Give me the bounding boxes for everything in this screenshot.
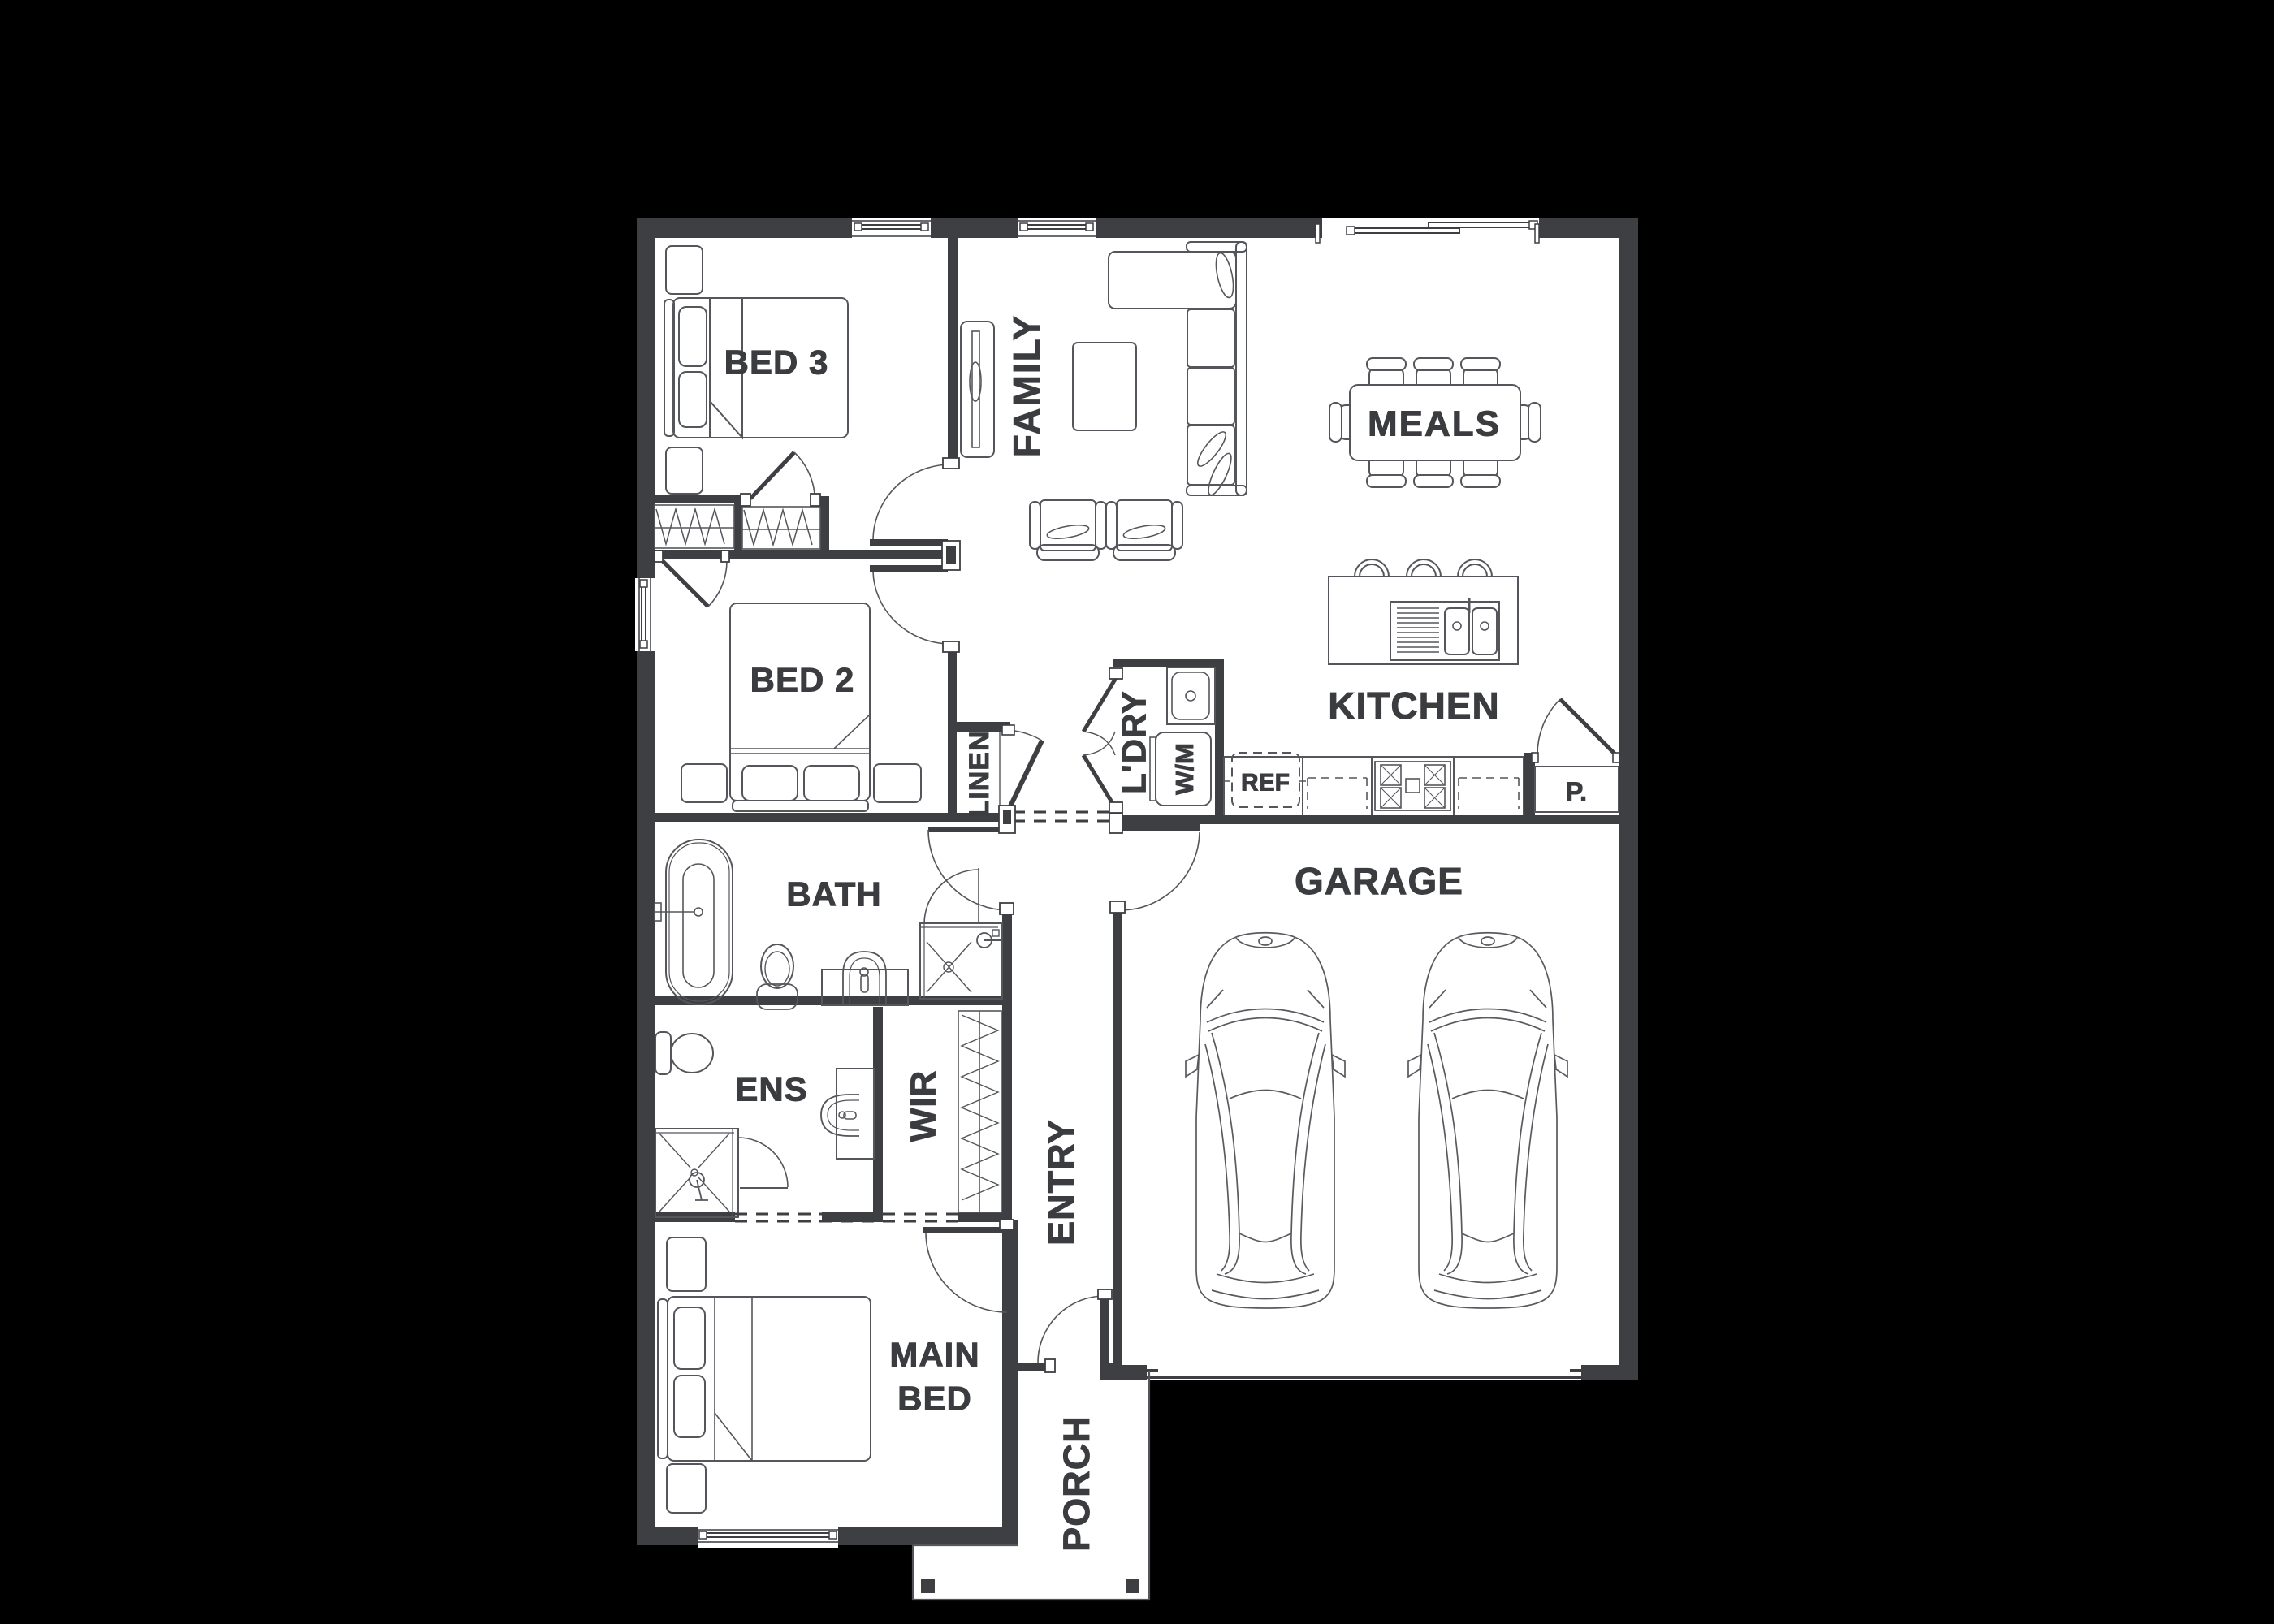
svg-text:P.: P. <box>1566 777 1587 806</box>
svg-text:L'DRY: L'DRY <box>1115 690 1153 794</box>
svg-text:REF: REF <box>1241 770 1290 797</box>
svg-text:GARAGE: GARAGE <box>1295 860 1463 902</box>
svg-text:PORCH: PORCH <box>1056 1415 1097 1552</box>
svg-text:ENTRY: ENTRY <box>1040 1119 1082 1246</box>
svg-text:BATH: BATH <box>786 875 882 914</box>
svg-text:KITCHEN: KITCHEN <box>1328 685 1499 727</box>
svg-text:MAIN: MAIN <box>889 1336 979 1374</box>
svg-text:MEALS: MEALS <box>1368 404 1501 443</box>
svg-text:BED: BED <box>897 1380 972 1418</box>
svg-text:LINEN: LINEN <box>964 731 995 818</box>
svg-text:WIR: WIR <box>903 1070 943 1142</box>
svg-text:BED 3: BED 3 <box>724 343 829 382</box>
svg-text:BED 2: BED 2 <box>750 661 855 699</box>
svg-text:ENS: ENS <box>735 1070 807 1108</box>
svg-text:W/M: W/M <box>1170 743 1199 795</box>
svg-text:FAMILY: FAMILY <box>1005 314 1048 457</box>
